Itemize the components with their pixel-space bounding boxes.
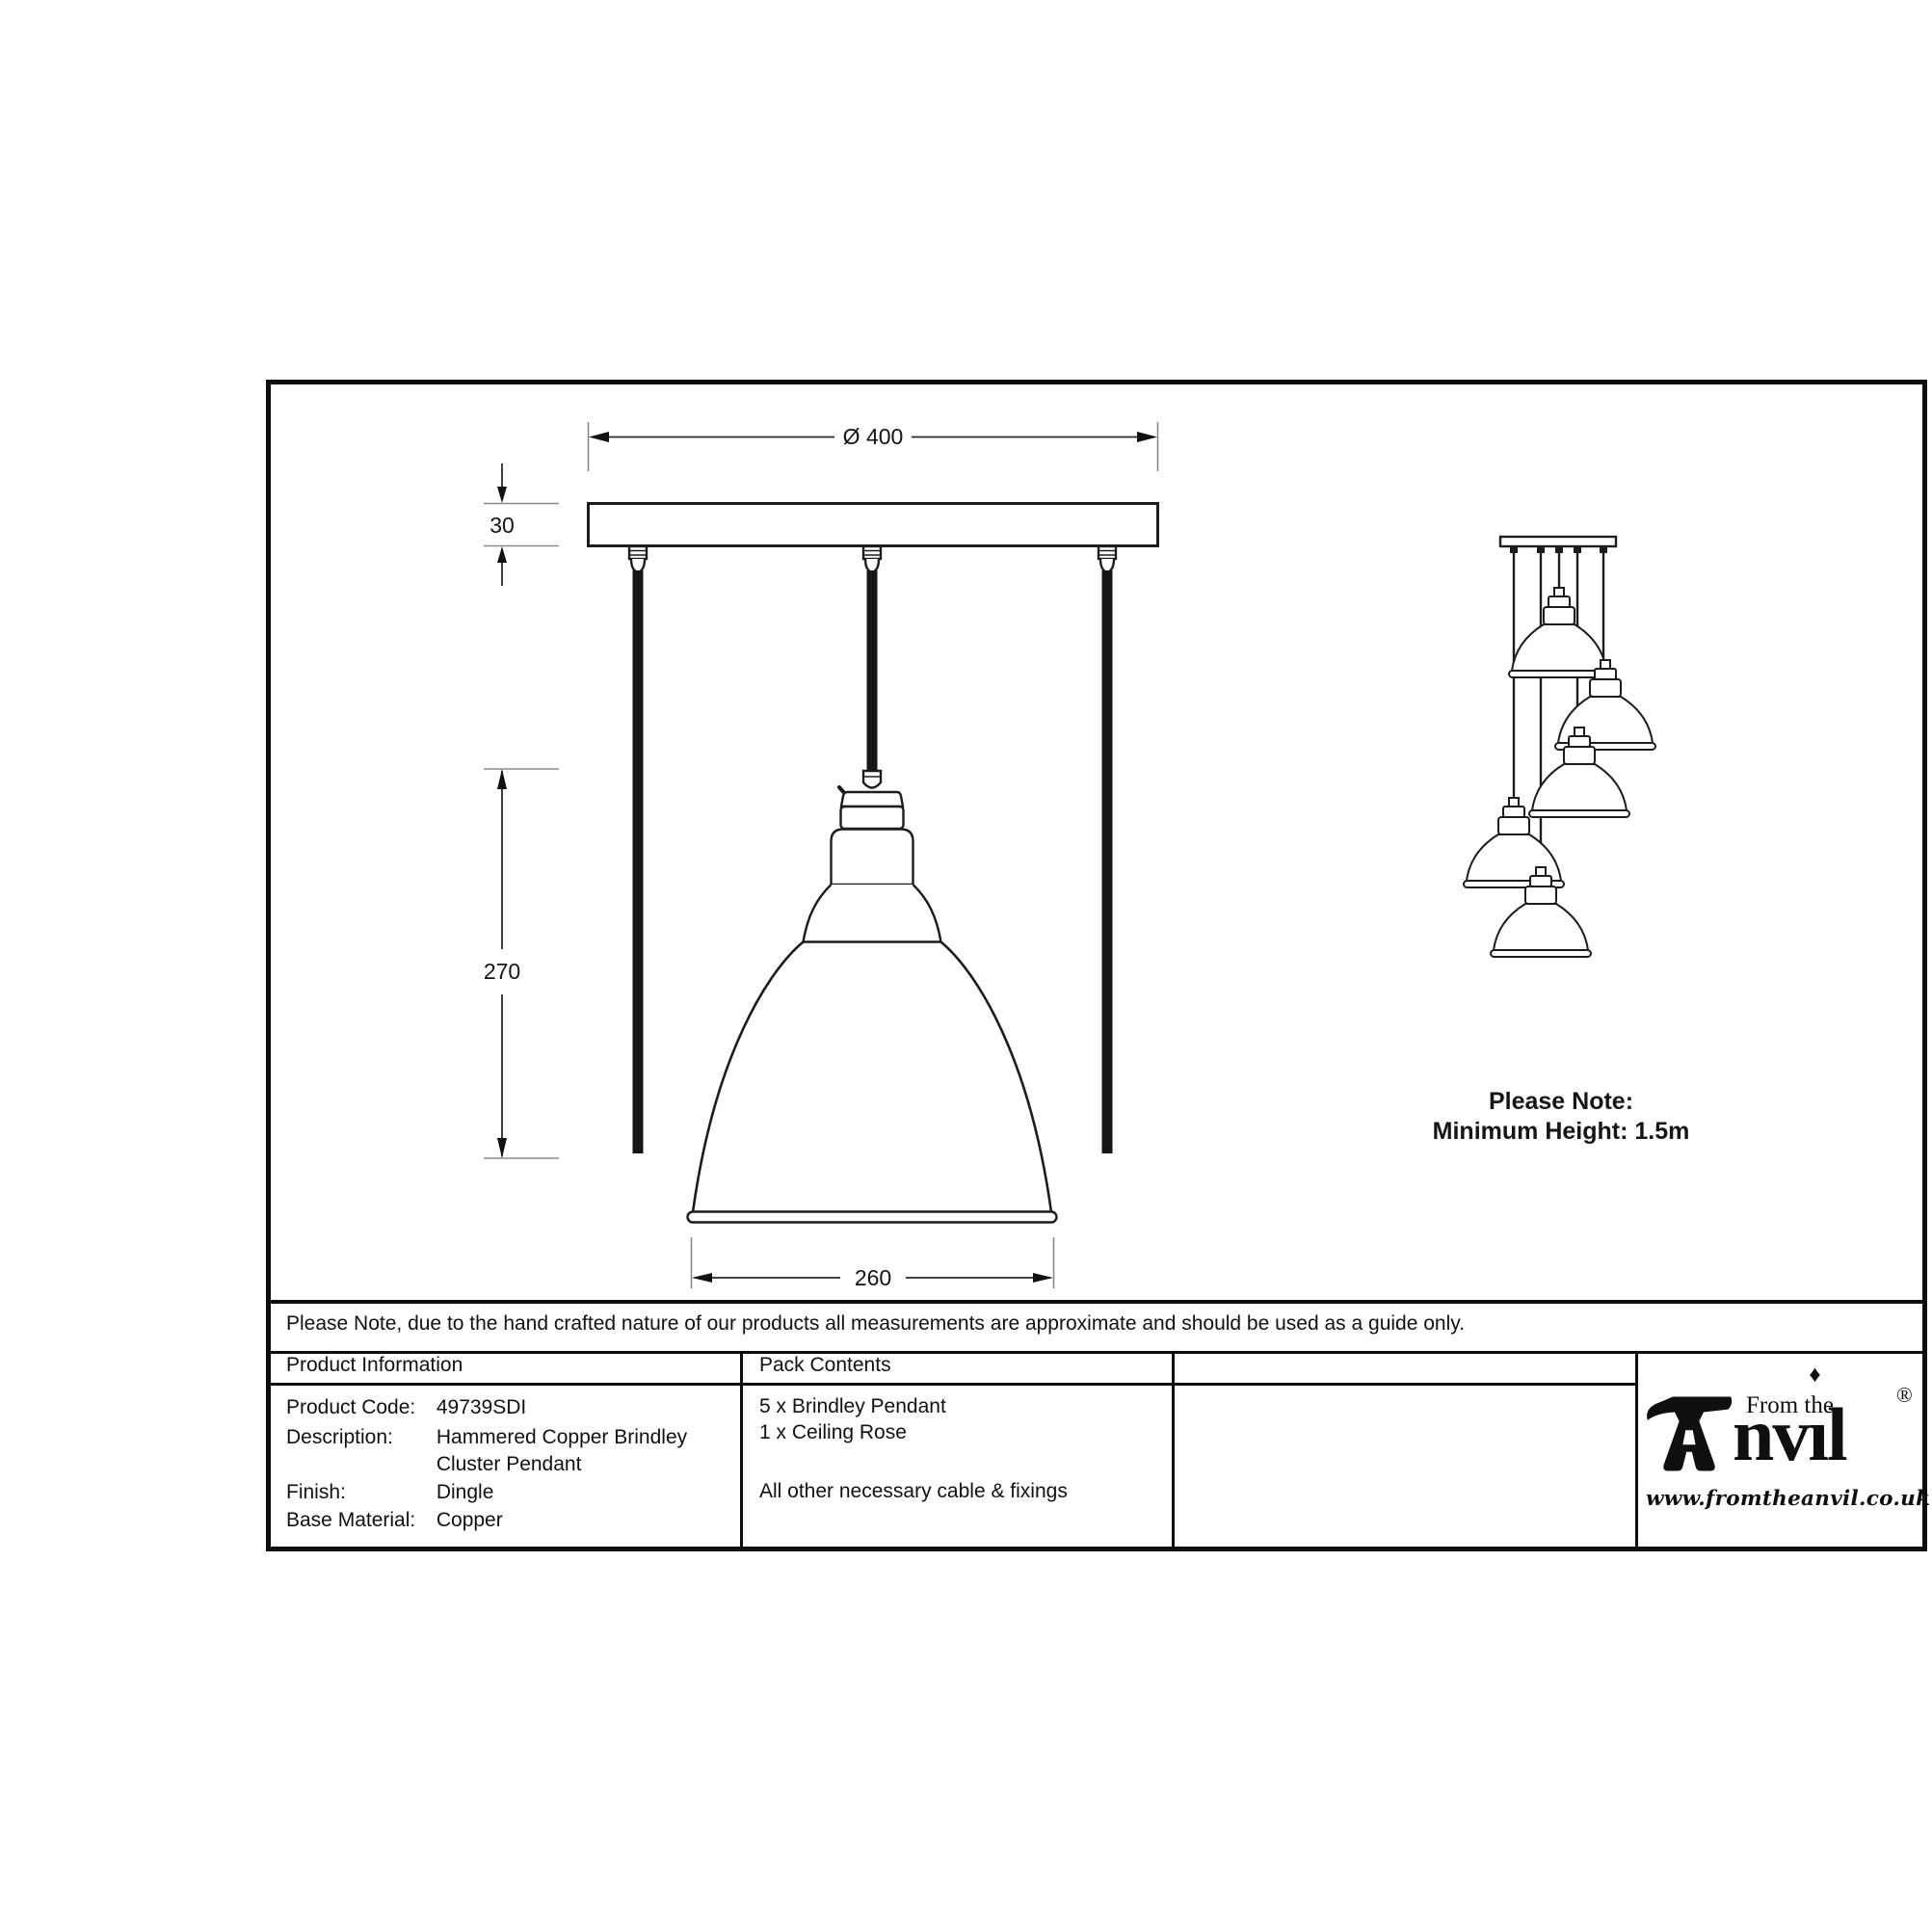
socket [841, 807, 904, 829]
product-row-value: Copper [437, 1509, 503, 1531]
dimension-shade-diameter: 260 [692, 1237, 1054, 1290]
note-row-border [271, 1351, 1922, 1354]
drawing-sheet: Ø 400 30 [266, 380, 1927, 1551]
cord-grip [863, 771, 881, 788]
brindley-pendant [688, 771, 1057, 1223]
header-row-border [271, 1383, 1635, 1386]
product-row: Finish: Dingle [286, 1481, 493, 1504]
page: { "sheet": { "note": "Please Note, due t… [0, 0, 1932, 1932]
anvil-logo: From the nv♦ıl ® www.fromtheanvil.co.uk [1644, 1367, 1923, 1531]
dimension-diameter: Ø 400 [589, 422, 1158, 471]
product-row-value: Cluster Pendant [437, 1453, 582, 1475]
product-row-value: Hammered Copper Brindley [437, 1426, 687, 1448]
dimension-plate-height-label: 30 [490, 513, 515, 538]
product-row: Cluster Pendant [286, 1453, 581, 1476]
column-divider-2 [1172, 1351, 1175, 1547]
front-view: Ø 400 30 [484, 422, 1158, 1290]
product-row-label: Finish: [286, 1481, 431, 1504]
logo-brand-text: nv♦ıl [1733, 1396, 1846, 1473]
table-top-border [271, 1300, 1922, 1304]
cord-connector-left [629, 546, 647, 572]
column-divider-1 [740, 1351, 743, 1547]
diamond-dot-icon: ♦ [1809, 1337, 1820, 1414]
pack-item: All other necessary cable & fixings [759, 1480, 1068, 1503]
gallery [832, 830, 913, 886]
dimension-pendant-height-label: 270 [484, 959, 520, 984]
measurement-disclaimer: Please Note, due to the hand crafted nat… [286, 1312, 1616, 1336]
shade-rim [688, 1212, 1057, 1223]
logo-website: www.fromtheanvil.co.uk [1646, 1487, 1930, 1511]
cluster-note-line1: Please Note: [1359, 1087, 1763, 1117]
product-row-label: Description: [286, 1426, 431, 1449]
cluster-ceiling-plate [1500, 537, 1616, 546]
product-information-header: Product Information [286, 1354, 463, 1377]
socket-cap [841, 792, 903, 807]
dimension-pendant-height: 270 [484, 769, 559, 1158]
bell-flare [804, 885, 941, 942]
cord-connector-right [1098, 546, 1116, 572]
pack-item: 1 x Ceiling Rose [759, 1421, 907, 1444]
cord-connector-center [863, 546, 881, 572]
cluster-view [1464, 537, 1655, 957]
column-divider-3 [1635, 1351, 1638, 1547]
product-row-label: Base Material: [286, 1509, 431, 1532]
product-row: Base Material: Copper [286, 1509, 503, 1532]
product-row: Product Code: 49739SDI [286, 1396, 526, 1419]
dimension-shade-diameter-label: 260 [855, 1265, 891, 1290]
cluster-pendant-1 [1509, 588, 1609, 677]
logo-brand-nv: nv [1733, 1392, 1808, 1476]
shade-sides [693, 942, 1051, 1213]
product-row-value: Dingle [437, 1481, 494, 1503]
cluster-note: Please Note: Minimum Height: 1.5m [1359, 1087, 1763, 1147]
pack-contents-header: Pack Contents [759, 1354, 891, 1377]
product-row: Description: Hammered Copper Brindley [286, 1426, 687, 1449]
ceiling-plate [589, 504, 1158, 546]
registered-mark: ® [1896, 1383, 1913, 1408]
product-row-label: Product Code: [286, 1396, 431, 1419]
anvil-icon [1644, 1392, 1734, 1475]
pack-item: 5 x Brindley Pendant [759, 1395, 946, 1418]
cluster-note-line2: Minimum Height: 1.5m [1359, 1117, 1763, 1147]
product-row-value: 49739SDI [437, 1396, 526, 1418]
dimension-plate-height: 30 [484, 463, 559, 586]
dimension-diameter-label: Ø 400 [843, 424, 904, 449]
